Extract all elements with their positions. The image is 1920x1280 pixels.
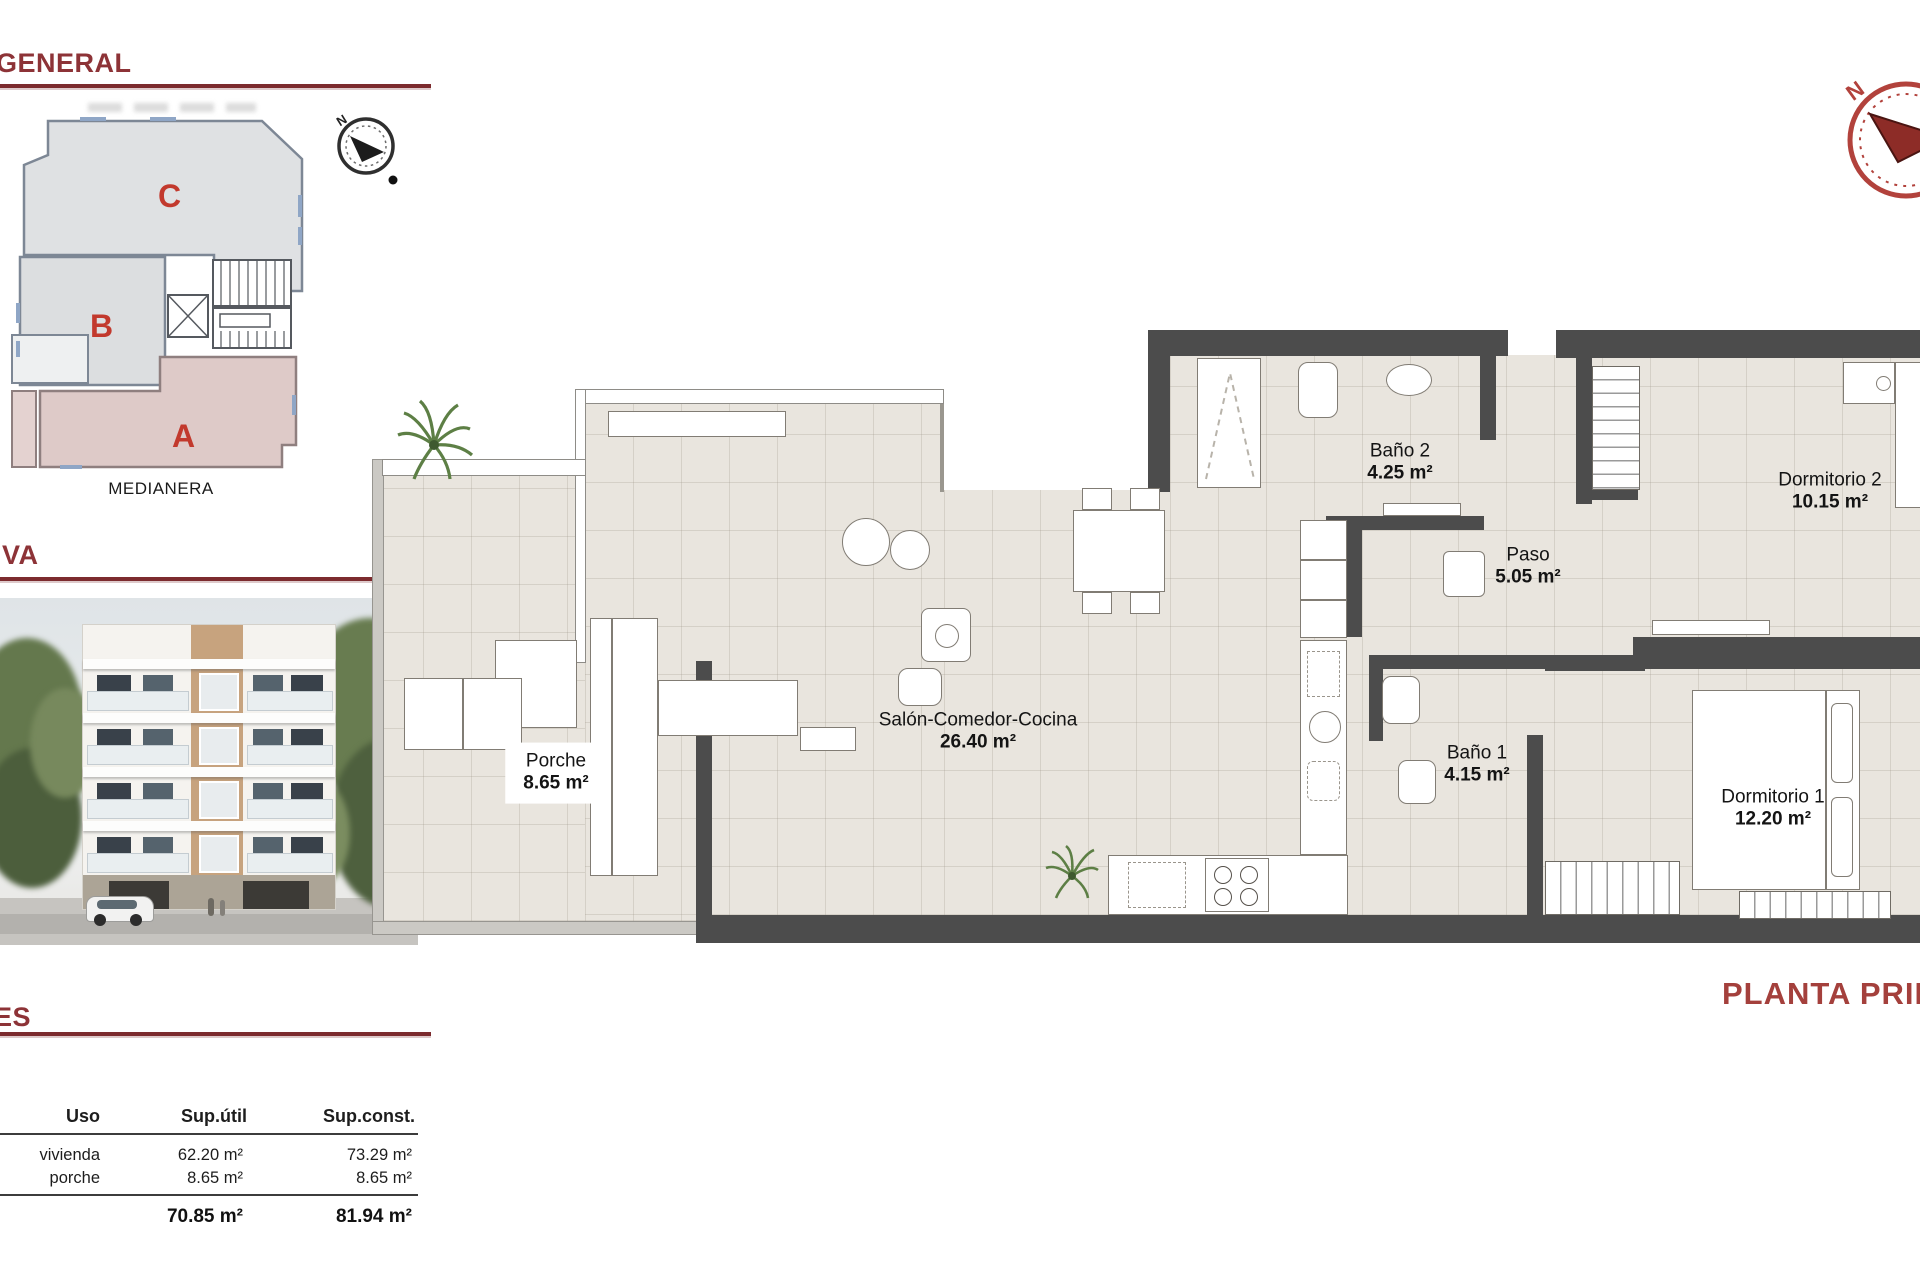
site-block-b-label: B [90,308,113,344]
wall-bath2-left [1148,330,1170,492]
wall-bath1-left [1369,669,1383,741]
dining-chair [1082,592,1112,614]
nightstand [1843,362,1895,404]
palm-tree-icon [392,395,476,489]
table-header-uso: Uso [0,1106,100,1127]
sofa-chaise [658,680,798,736]
shower [1197,358,1261,488]
section-title-perspective: VA [2,540,39,571]
dorm2-shelf [1652,620,1770,635]
render-road [0,914,418,934]
wall-paso-dorm2 [1576,356,1592,504]
table-row-uso: porche [0,1169,100,1188]
table-row-uso: vivienda [0,1146,100,1165]
wall-bottom-outer [696,915,1920,943]
bed-partial [1895,362,1920,508]
site-plan-diagram: C B A [0,95,330,495]
facade-step-line [940,389,944,492]
section-rule-areas [0,1032,431,1036]
pouf [898,668,942,706]
dining-chair [1082,488,1112,510]
cooktop [1205,858,1269,912]
toilet [1298,362,1338,418]
bathroom-sink [1398,760,1436,804]
table-row-util: 62.20 m² [120,1146,243,1165]
section-title-general: GENERAL [0,48,132,79]
room-label-bano1: Baño 1 4.15 m² [1444,743,1509,788]
site-block-c-label: C [158,178,181,214]
towel-radiator [1383,503,1461,516]
table-row-const: 8.65 m² [278,1169,412,1188]
wall-bath2-right [1480,356,1496,440]
site-block-a-label: A [172,418,195,454]
porche-parapet-left [372,459,384,935]
dining-table [1073,510,1165,592]
table-row-util: 8.65 m² [120,1169,243,1188]
room-label-paso: Paso 5.05 m² [1495,545,1560,590]
room-label-salon: Salón-Comedor-Cocina 26.40 m² [879,710,1078,755]
site-stairs-upper [213,260,291,306]
wall-top-2 [1556,330,1920,358]
table-total-util: 70.85 m² [120,1206,243,1228]
section-rule-perspective [0,577,431,581]
site-block-a-strip [12,391,36,467]
room-label-bano2: Baño 2 4.25 m² [1367,441,1432,486]
round-chair [890,530,930,570]
dining-chair [1130,592,1160,614]
plan-title: PLANTA PRIMERA [1722,976,1920,1012]
wardrobe [1739,891,1891,919]
stair-shaft [1592,366,1640,490]
side-table [800,727,856,751]
porche-parapet-bottom [372,921,704,935]
armchair [921,608,971,662]
compass-large: N [1842,72,1920,222]
kitchen-tall-units [1300,520,1347,638]
kitchen-counter-right [1300,640,1347,855]
table-header-const: Sup.const. [278,1106,415,1127]
table-row-const: 73.29 m² [278,1146,412,1165]
wall-top-1 [1148,330,1508,356]
compass-small-dot [389,176,398,185]
sideboard [608,411,786,437]
table-rule-bottom [0,1194,418,1196]
site-stairs-rail [220,314,270,327]
site-room-light [12,335,88,383]
car-wheel-icon [94,914,106,926]
building-render [0,598,418,945]
dining-chair [1130,488,1160,510]
hall-cabinet [1443,551,1485,597]
table-total-const: 81.94 m² [278,1206,412,1228]
room-label-dormitorio2: Dormitorio 2 10.15 m² [1778,470,1881,515]
medianera-label: MEDIANERA [103,479,219,499]
wall-dorm2-bottom [1633,637,1920,669]
render-building-body [82,624,336,910]
wall-dorm1-top [1545,655,1645,671]
wall-bath1-right [1527,735,1543,931]
room-label-porche: Porche 8.65 m² [505,743,606,804]
section-rule-general [0,84,431,88]
compass-small: N [330,106,412,198]
car-wheel2-icon [130,914,142,926]
kitchen-sink [1128,862,1186,908]
plan-sheet: { "panels": { "general": { "title": "GEN… [0,0,1920,1280]
table-header-util: Sup.útil [120,1106,247,1127]
wardrobe [1545,861,1680,915]
table-rule-top [0,1133,418,1135]
round-table [842,518,890,566]
porche-bench [404,678,522,750]
plant-icon [1042,842,1102,904]
room-label-dormitorio1: Dormitorio 1 12.20 m² [1721,787,1824,832]
toilet [1382,676,1420,724]
living-window-band [585,389,944,404]
wall-bath1-top [1369,655,1547,669]
bathroom-sink [1386,364,1432,396]
porche-glass-door [575,389,586,663]
wall-kitchen-col [1347,520,1362,637]
section-title-areas: ES [0,1002,31,1033]
